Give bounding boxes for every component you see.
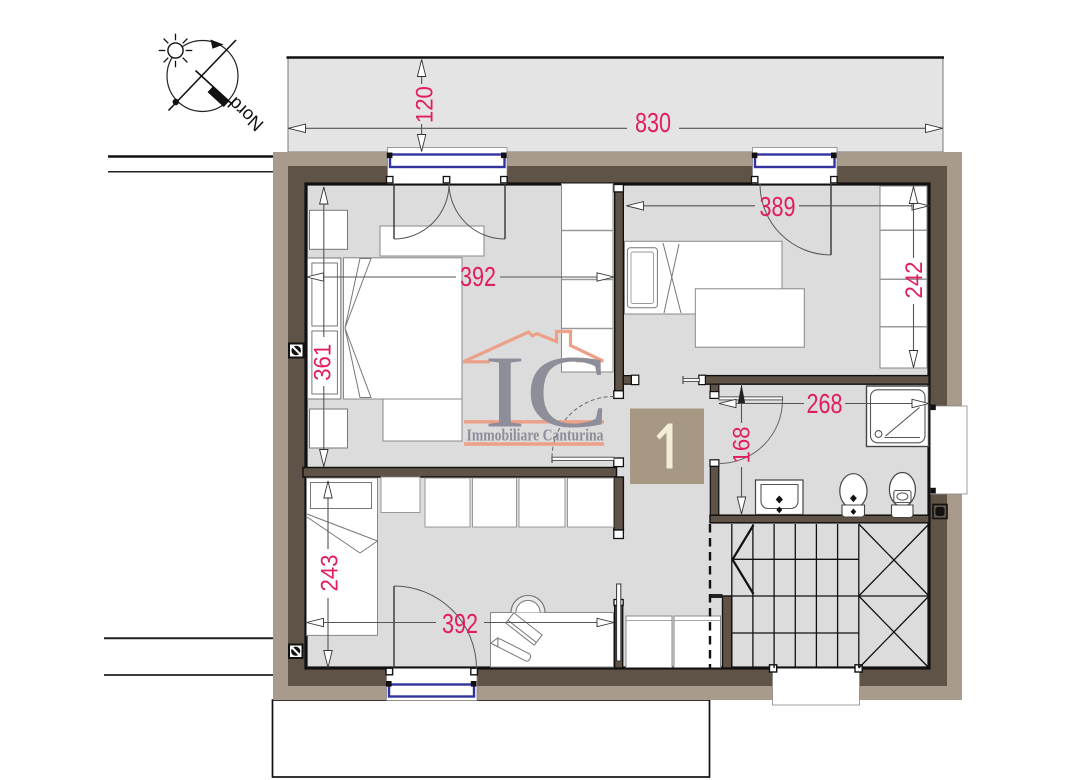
- svg-text:Immobiliare Canturina: Immobiliare Canturina: [467, 426, 604, 445]
- svg-text:830: 830: [635, 107, 671, 138]
- svg-text:242: 242: [901, 262, 928, 299]
- svg-text:268: 268: [807, 388, 843, 419]
- svg-text:361: 361: [310, 344, 337, 381]
- svg-text:389: 389: [760, 191, 796, 222]
- svg-text:168: 168: [728, 427, 755, 464]
- svg-text:243: 243: [316, 555, 343, 592]
- svg-text:120: 120: [411, 86, 438, 123]
- svg-text:392: 392: [442, 608, 478, 639]
- svg-text:392: 392: [460, 261, 496, 292]
